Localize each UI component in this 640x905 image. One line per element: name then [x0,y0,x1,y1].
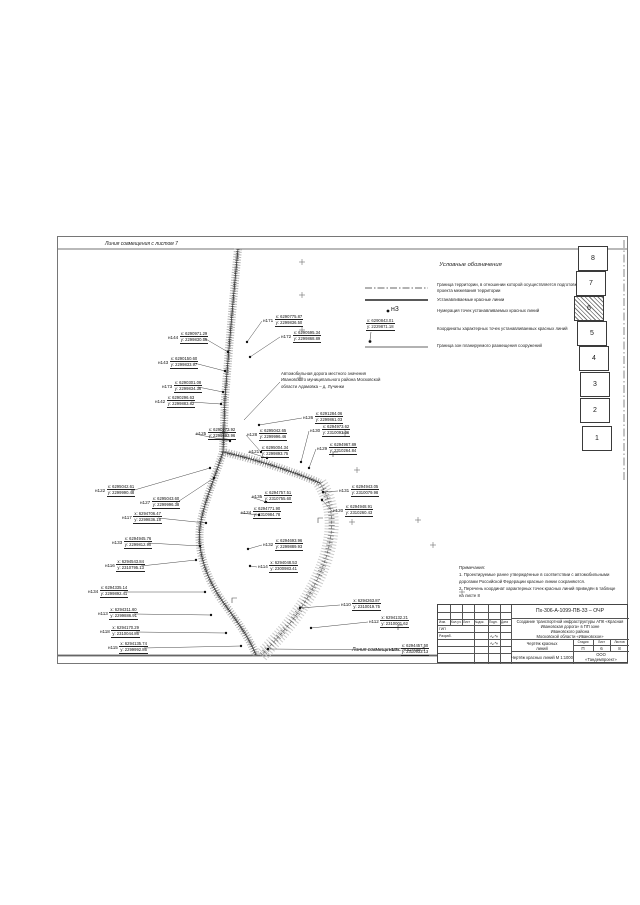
coordinate-value: y: 2310795.13 [116,565,145,571]
grid-cross [299,292,305,298]
point-id: н113 [98,611,108,616]
point-id: н144 [168,335,178,340]
coordinate-value: y: 2310984.78 [253,512,282,518]
coordinate-value: y: 2310264.84 [329,448,358,454]
coordinate-value: y: 2310019.75 [352,604,381,610]
point-leader-line [309,449,316,468]
tb-org-line: «Тандемпроект» [573,657,629,662]
coordinate-value: y: 2299830.56 [180,337,209,343]
red-line-point-marker [229,440,231,442]
sheet-index-box-4: 4 [579,346,609,371]
legend-item-point-numbers: Нумерация точек устанавливаемых красных … [437,308,587,314]
point-coordinates: x: 6294693.96y: 2299889.93 [275,538,304,551]
point-id: н117 [122,515,132,520]
sheet-index-box-6-current: 6 [574,296,604,321]
point-coordinates: x: 6295042.61y: 2299990.48 [107,484,136,497]
legend-coord-point [369,340,372,343]
point-id: н118 [100,629,110,634]
corner-mark [232,598,237,603]
map-point-label-н133: н133x: 6294945.76y: 2299812.90 [112,536,152,549]
point-leader-line [134,614,211,615]
coordinate-value: y: 2299812.90 [124,542,153,548]
tb-project-line: Создание транспортной инфраструктуры АПК… [513,619,627,629]
tb-role-gip: ГИП [439,627,473,631]
map-point-label-н142: н142x: 6290296.63y: 2299883.82 [155,395,195,408]
map-point-label-н121: н121x: 6295004.34y: 2299893.75 [249,445,289,458]
notes-block: Примечания: 1. Проектируемые ранее утвер… [459,565,621,600]
red-line-point-marker [267,648,269,650]
point-id: н129 [317,446,327,451]
red-line-point-marker [220,403,222,405]
point-id: н128 [247,432,257,437]
coordinate-value: y: 2310933.13 [401,649,430,655]
coordinate-value: y: 2299836.18 [133,517,162,523]
red-line-point-marker [321,499,323,501]
map-point-label-н116: н116x: 6294543.84y: 2310795.13 [105,559,145,572]
map-point-label-н112: н112x: 6294132.21y: 2310001.62 [369,615,409,628]
red-line-point-marker [249,356,251,358]
annotation-line: области Адамовка – д. Лучинки [281,384,399,390]
map-point-label-н114: н114x: 6294048.53y: 2300983.41 [258,560,298,573]
map-point-label-н117: н117x: 6294706.47y: 2299836.18 [122,511,162,524]
point-coordinates: x: 6294170.29y: 2310044.86 [111,625,140,638]
map-point-label-н131: н131x: 6294943.05y: 2310079.98 [339,484,379,497]
point-id: н134 [88,589,98,594]
tb-sheets-header: Листов [610,640,629,644]
red-line-point-marker [225,632,227,634]
point-leader-line [191,402,221,404]
point-id: н131 [339,488,349,493]
point-id: н109 [389,647,399,652]
point-coordinates: x: 6294132.21y: 2310001.62 [380,615,409,628]
tb-sheets-value: 8 [610,646,629,651]
coordinate-value: y: 2299868.89 [293,336,322,342]
corner-mark [318,518,323,523]
point-leader-line [259,418,302,425]
point-coordinates: x: 6294945.76y: 2299812.90 [124,536,153,549]
tb-line [511,651,573,652]
legend-coordinate-sample: x: 6290843.01 y: 2229871.18 [366,318,395,331]
road-name-annotation: Автомобильная дорога местного значения И… [281,371,399,390]
coordinate-value: y: 2299889.93 [275,544,304,550]
grid-cross [354,467,360,473]
sheet-index-box-5: 5 [577,321,607,346]
tb-line [500,605,501,664]
point-id: н126 [303,415,313,420]
coordinate-value: y: 2299996.46 [259,434,288,440]
point-id: н124 [241,510,251,515]
point-leader-line [194,363,225,371]
map-point-label-н118: н118x: 6294170.29y: 2310044.86 [100,625,140,638]
point-leader-line [250,337,280,357]
point-leader-line [141,560,196,566]
map-point-label-н115: н115x: 6294135.74y: 2299992.86 [108,641,148,654]
point-coordinates: x: 6290301.08y: 2299834.36 [174,380,203,393]
legend-item-coordinates: Координаты характерных точек устанавлива… [437,326,587,332]
red-line-point-marker [204,591,206,593]
point-id: н122 [95,488,105,493]
point-coordinates: x: 6294948.91y: 2310260.43 [345,504,374,517]
tb-rev-header-koluch: Кол.уч. [451,620,462,624]
red-line-point-marker [205,522,207,524]
tb-rev-header-izm: Изм. [439,620,450,624]
map-point-label-н132: н132x: 6294693.96y: 2299889.93 [263,538,303,551]
point-coordinates: x: 6294543.84y: 2310795.13 [116,559,145,572]
coordinate-value: y: 2310093.06 [322,430,351,436]
red-line-point-marker [195,559,197,561]
tb-rev-header-ndok: №док. [475,620,488,624]
tb-drawing-name: Чертёж красных линий [511,641,573,651]
tb-rev-header-podp: Подп. [489,620,500,624]
grid-cross [415,517,421,523]
point-coordinates: x: 6295043.60y: 2299996.38 [152,496,181,509]
tb-sheet-value: 6 [593,646,610,651]
map-point-label-н173: н173x: 6290301.08y: 2299834.36 [162,380,202,393]
coordinate-value: y: 2299996.38 [152,502,181,508]
point-coordinates: x: 6294771.90y: 2310984.78 [253,506,282,519]
map-point-label-н172: н172x: 6290595.34y: 2299868.89 [281,330,321,343]
point-id: н116 [105,563,115,568]
coordinate-value: y: 2300983.41 [269,566,298,572]
tb-sheet-header: Лист [593,640,610,644]
red-line-point-marker [240,645,242,647]
point-coordinates: x: 6294757.51y: 2310755.60 [264,490,293,503]
map-point-label-н143: н143x: 6290150.60y: 2299833.97 [158,356,198,369]
map-point-label-н129: н129x: 6294967.89y: 2310264.84 [317,442,357,455]
map-point-label-н125: н125x: 6290273.92y: 2299893.96 [196,427,236,440]
point-leader-line [144,646,241,648]
point-leader-line [248,545,262,549]
coordinate-value: y: 2299834.36 [174,386,203,392]
coordinate-value: y: 2299893.96 [208,433,237,439]
point-coordinates: x: 6294311.60y: 2299886.91 [109,607,138,620]
point-coordinates: x: 6294048.53y: 2300983.41 [269,560,298,573]
point-id: н120 [333,508,343,513]
notes-title: Примечания: [459,565,621,571]
coordinate-value: y: 2299861.03 [315,417,344,423]
red-line-point-marker [310,627,312,629]
point-coordinates: x: 6294457.50y: 2310933.13 [401,643,430,656]
map-point-label-н128: н128x: 6295042.65y: 2299996.46 [247,428,287,441]
coordinate-value: y: 2299892.41 [100,591,129,597]
red-line-point-marker [222,391,224,393]
map-point-label-н109: н109x: 6294457.50y: 2310933.13 [389,643,429,656]
red-line-point-marker [308,467,310,469]
red-line-point-marker [213,477,215,479]
point-id: н172 [281,334,291,339]
note-item: 1. Проектируемые ранее утверждённые в со… [459,572,621,585]
red-line-point-marker [227,351,229,353]
map-point-label-н134: н134x: 6294335.14y: 2299892.41 [88,585,128,598]
point-id: н142 [155,399,165,404]
point-id: н171 [263,318,273,323]
point-id: н127 [140,500,150,505]
point-coordinates: x: 6294943.05y: 2310079.98 [351,484,380,497]
point-id: н115 [108,645,118,650]
tb-rev-header-data: Дата [501,620,511,624]
point-coordinates: x: 6290971.29y: 2299830.56 [180,331,209,344]
map-point-label-н130: н130x: 6294973.62y: 2310093.06 [310,424,350,437]
point-coordinates: x: 6290150.60y: 2299833.97 [170,356,199,369]
legend-item-territory-boundary: Граница территории, в отношении которой … [437,282,587,293]
point-leader-line [148,543,200,546]
point-coordinates: x: 6294706.47y: 2299836.18 [133,511,162,524]
point-coordinates: x: 6290775.87y: 2299836.50 [275,314,304,327]
match-line-top-label: Линия совмещения с листом 7 [105,241,178,247]
coordinate-value: y: 2299990.48 [107,490,136,496]
point-id: н110 [341,602,351,607]
coordinate-value: y: 2299886.91 [109,613,138,619]
legend-title: Условные обозначения [398,262,543,268]
red-line-point-marker [224,370,226,372]
sheet-index-box-8: 8 [578,246,608,271]
point-coordinates: x: 6291284.06y: 2299861.03 [315,411,344,424]
title-block: Изм. Кол.уч. Лист №док. Подп. Дата ГИП Р… [437,604,628,663]
map-point-label-н127: н127x: 6295043.60y: 2299996.38 [140,496,180,509]
note-item: 2. Перечень координат характерных точек … [459,586,621,599]
legend-coord-leader [370,332,371,340]
red-line-point-marker [199,545,201,547]
red-line-point-marker [246,341,248,343]
point-leader-line [136,632,226,633]
grid-cross [430,542,436,548]
point-coordinates: x: 6290296.63y: 2299883.82 [167,395,196,408]
coordinate-value: y: 2299893.75 [261,451,290,457]
legend-item-red-lines: Устанавливаемые красные линии [437,297,587,303]
coordinate-value: y: 2299883.82 [167,401,196,407]
grid-cross [299,259,305,265]
coordinate-value: y: 2299836.50 [275,320,304,326]
legend-point-sample-id: н3 [391,306,399,313]
red-line-point-marker [322,491,324,493]
point-coordinates: x: 6295042.65y: 2299996.46 [259,428,288,441]
map-point-label-н113: н113x: 6294311.60y: 2299886.91 [98,607,138,620]
tb-scale-line: Чертёж красных линий М 1:1000 [511,655,573,660]
red-line-point-marker [209,467,211,469]
tb-line [488,605,489,664]
tb-organization: ООО «Тандемпроект» [573,652,629,664]
drawing-sheet: { "match_lines": { "top": "Линия совмеще… [0,0,640,905]
point-coordinates: x: 6294335.14y: 2299892.41 [100,585,129,598]
point-id: н114 [258,564,268,569]
grid-cross [349,519,355,525]
coordinate-value: y: 2299833.97 [170,362,199,368]
point-coordinates: x: 6294967.89y: 2310264.84 [329,442,358,455]
point-coordinates: x: 6294973.62y: 2310093.06 [322,424,351,437]
tb-signature: ∿∿ [490,632,500,650]
red-line-point-marker [249,565,251,567]
point-leader-line [311,622,368,628]
map-point-label-н122: н122x: 6295042.61y: 2299990.48 [95,484,135,497]
map-point-label-н171: н171x: 6290775.87y: 2299836.50 [263,314,303,327]
point-id: н125 [196,431,206,436]
tb-role-developer: Разраб. [439,634,473,638]
red-line-point-marker [247,548,249,550]
coordinate-value: y: 2310001.62 [380,621,409,627]
tb-stage-value: П [573,646,593,651]
tb-line [474,605,475,664]
point-id: н133 [112,540,122,545]
annotation-leader [244,382,280,420]
map-point-label-н120: н120x: 6294948.91y: 2310260.43 [333,504,373,517]
point-leader-line [301,431,309,462]
coordinate-value: y: 2299992.86 [119,647,148,653]
point-id: н173 [162,384,172,389]
coordinate-value: y: 2310079.98 [351,490,380,496]
point-coordinates: x: 6290595.34y: 2299868.89 [293,330,322,343]
sheet-index-box-7: 7 [576,271,606,296]
sheet-index-box-1: 1 [582,426,612,451]
coordinate-value: y: 2310260.43 [345,510,374,516]
coordinate-value: y: 2310755.60 [264,496,293,502]
point-coordinates: x: 6294135.74y: 2299992.86 [119,641,148,654]
tb-doc-number: Пх-306-А-1099-ПВ-33 – ОЧР [511,608,629,614]
point-id: н112 [369,619,379,624]
point-id: н121 [249,449,259,454]
map-point-label-н135: н135x: 6294757.51y: 2310755.60 [252,490,292,503]
map-point-label-н124: н124x: 6294771.90y: 2310984.78 [241,506,281,519]
sheet-index-box-2: 2 [580,398,610,423]
road-corridor-southwest [199,452,256,655]
point-coordinates: x: 6295004.34y: 2299893.75 [261,445,290,458]
point-id: н143 [158,360,168,365]
red-line-point-marker [300,461,302,463]
sheet-index-box-3: 3 [580,372,610,397]
point-leader-line [131,468,210,491]
legend-item-structures-boundary: Граница зон планируемого размещения соор… [437,343,587,349]
point-id: н132 [263,542,273,547]
legend-point-swatch [387,310,390,313]
point-id: н130 [310,428,320,433]
point-leader-line [247,321,262,342]
map-point-label-н110: н110x: 6294263.87y: 2310019.75 [341,598,381,611]
red-line-point-marker [299,607,301,609]
point-coordinates: x: 6294263.87y: 2310019.75 [352,598,381,611]
red-line-point-marker [258,424,260,426]
red-line-point-marker [210,614,212,616]
tb-project-name: Создание транспортной инфраструктуры АПК… [513,619,627,639]
legend-sample-y: y: 2229871.18 [366,324,395,330]
point-coordinates: x: 6290273.92y: 2299893.96 [208,427,237,440]
tb-stage-header: Стадия [573,640,593,644]
map-point-label-н144: н144x: 6290971.29y: 2299830.56 [168,331,208,344]
coordinate-value: y: 2310044.86 [111,631,140,637]
tb-rev-header-list: Лист [463,620,474,624]
point-id: н135 [252,494,262,499]
map-point-label-н126: н126x: 6291284.06y: 2299861.03 [303,411,343,424]
